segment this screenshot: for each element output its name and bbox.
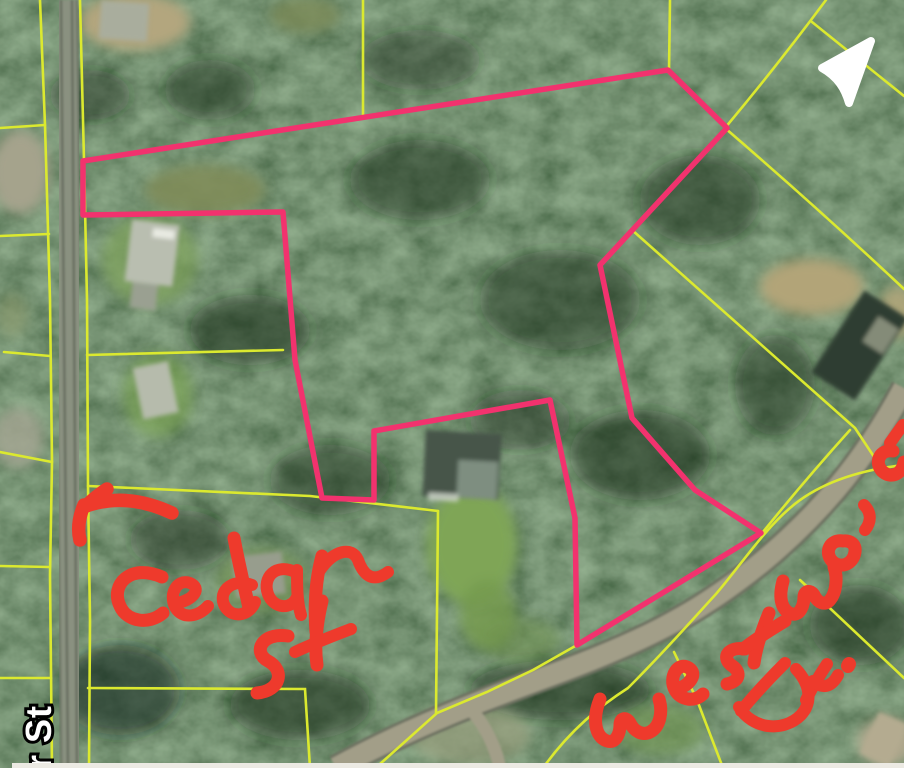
- map-canvas[interactable]: ar St: [0, 0, 904, 768]
- street-label-cedar-st: ar St: [18, 705, 59, 768]
- satellite-imagery: [0, 0, 904, 768]
- house-center: [422, 430, 502, 504]
- road-cedar-st: [61, 0, 77, 768]
- house-top-left: [99, 0, 150, 41]
- bottom-edge-strip: [12, 763, 904, 768]
